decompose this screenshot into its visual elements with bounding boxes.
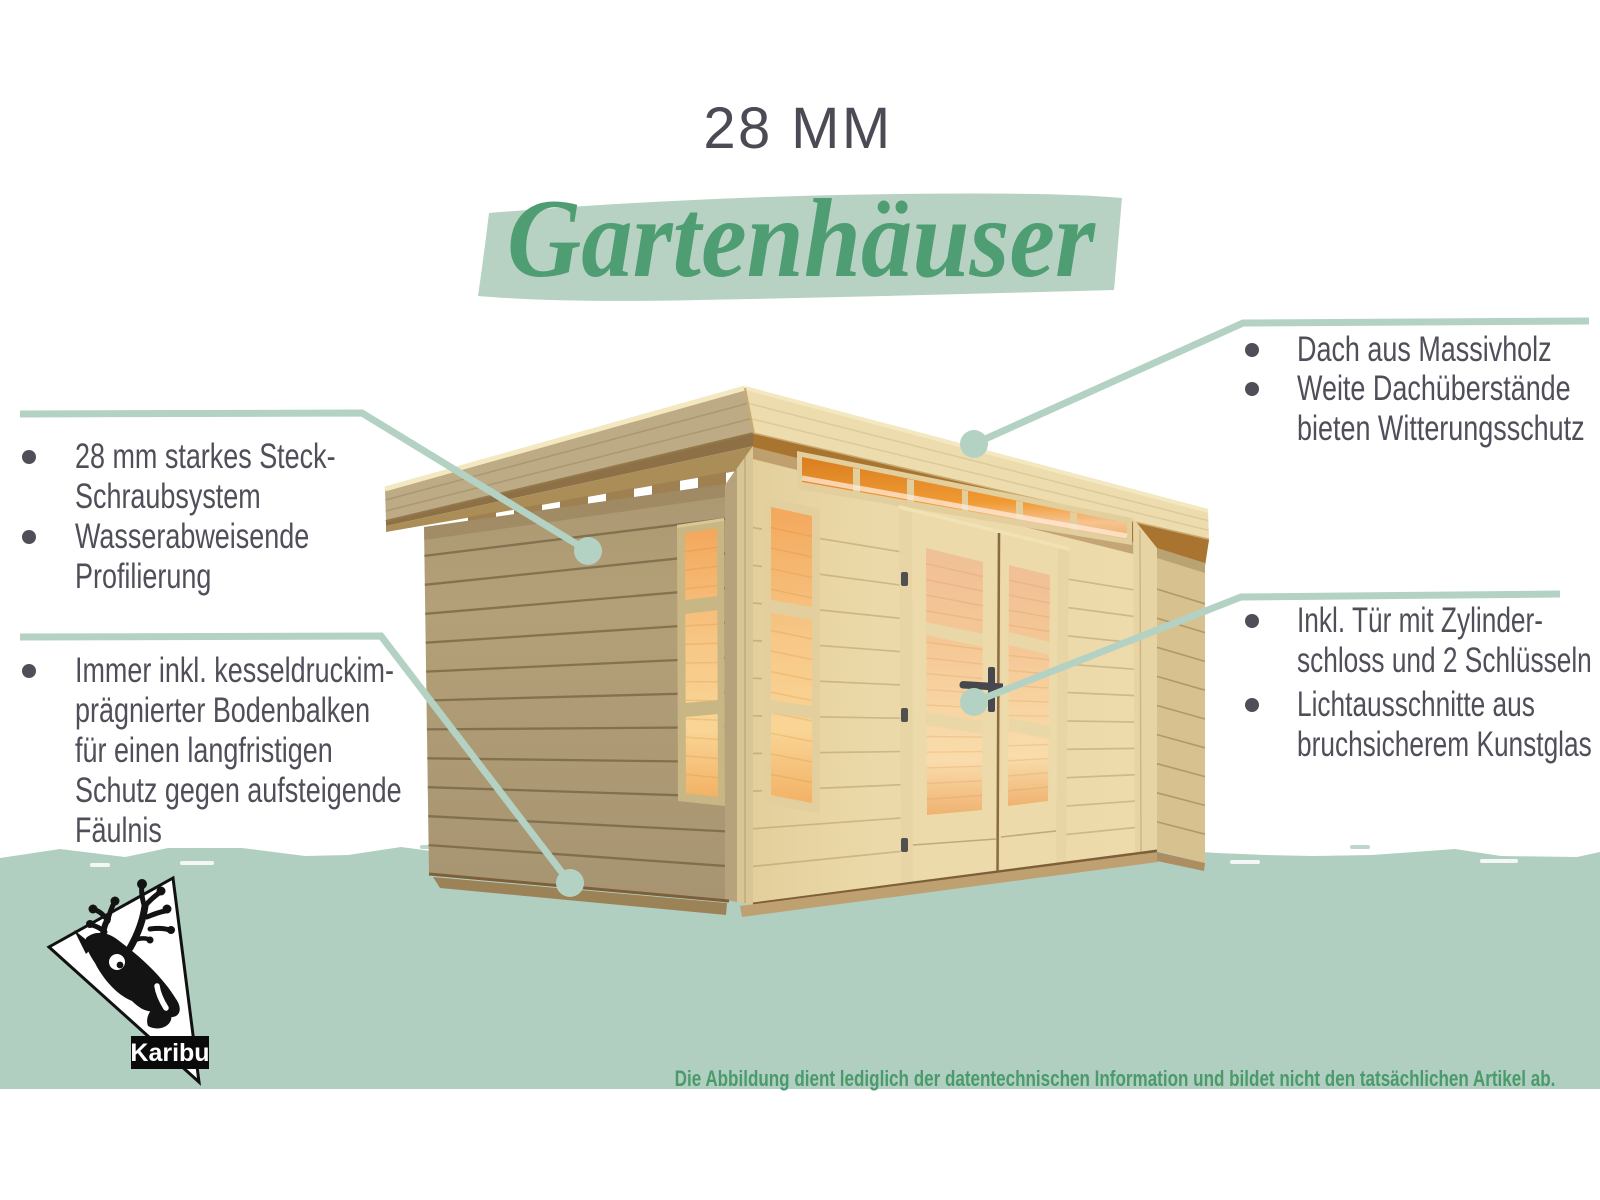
svg-text:Gartenhäuser: Gartenhäuser: [507, 177, 1096, 301]
svg-text:Karibu: Karibu: [130, 1039, 209, 1067]
